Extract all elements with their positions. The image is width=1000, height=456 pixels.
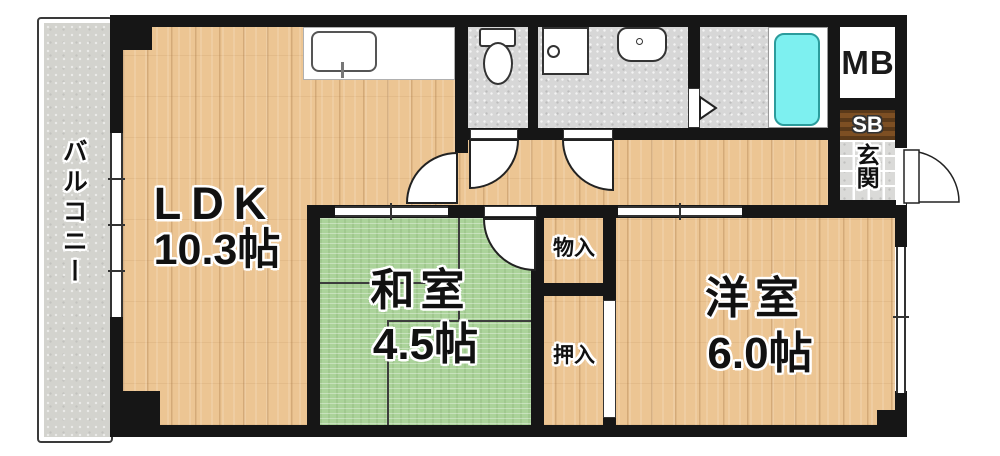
floor-plan: バルコニー LDK 10.3帖 和室 4.5帖 洋室 6.0帖 物入 押入 玄関… — [0, 0, 1000, 456]
entrance-door-leaf — [904, 150, 919, 203]
wash-basin-drain-icon — [636, 38, 643, 45]
washitsu-label: 和室 — [328, 268, 513, 314]
washitsu-size: 4.5帖 — [328, 322, 523, 368]
window-tick — [893, 316, 909, 318]
balcony-label: バルコニー — [60, 138, 86, 288]
wall-left-lower — [110, 317, 123, 393]
entrance-opening — [896, 148, 906, 205]
washing-machine-door-icon — [547, 45, 560, 58]
wall-mb-bottom — [828, 98, 895, 110]
western-window — [896, 247, 906, 393]
washroom-door-leaf — [563, 129, 613, 139]
faucet-icon — [341, 62, 344, 78]
wall-toilet-washroom — [528, 15, 538, 140]
meter-box-label: MB — [838, 44, 898, 82]
ldk-size: 10.3帖 — [112, 228, 322, 273]
slider-tick — [390, 203, 392, 220]
western-label: 洋室 — [660, 276, 850, 322]
pillar-bottom-right — [877, 410, 907, 437]
slider-tick — [679, 203, 681, 220]
wall-left-upper — [110, 27, 123, 133]
closet-label: 押入 — [538, 345, 610, 367]
washitsu-door-leaf — [484, 206, 537, 217]
wall-bottom — [110, 425, 907, 437]
kitchen-sink — [311, 31, 377, 72]
western-size: 6.0帖 — [655, 331, 865, 377]
toilet-door-leaf — [470, 129, 518, 139]
wall-storage-divider — [531, 283, 616, 296]
wall-top — [110, 15, 907, 27]
bathtub — [774, 33, 820, 126]
entrance-label: 玄関 — [854, 143, 878, 200]
entrance-door-arc — [908, 151, 959, 202]
ldk-label: LDK — [120, 180, 310, 227]
wash-basin — [617, 27, 667, 62]
shoe-box-label: SB — [840, 112, 895, 138]
toilet-bowl — [483, 42, 513, 85]
storage-label: 物入 — [538, 238, 610, 260]
bath-folding-door — [688, 88, 700, 128]
